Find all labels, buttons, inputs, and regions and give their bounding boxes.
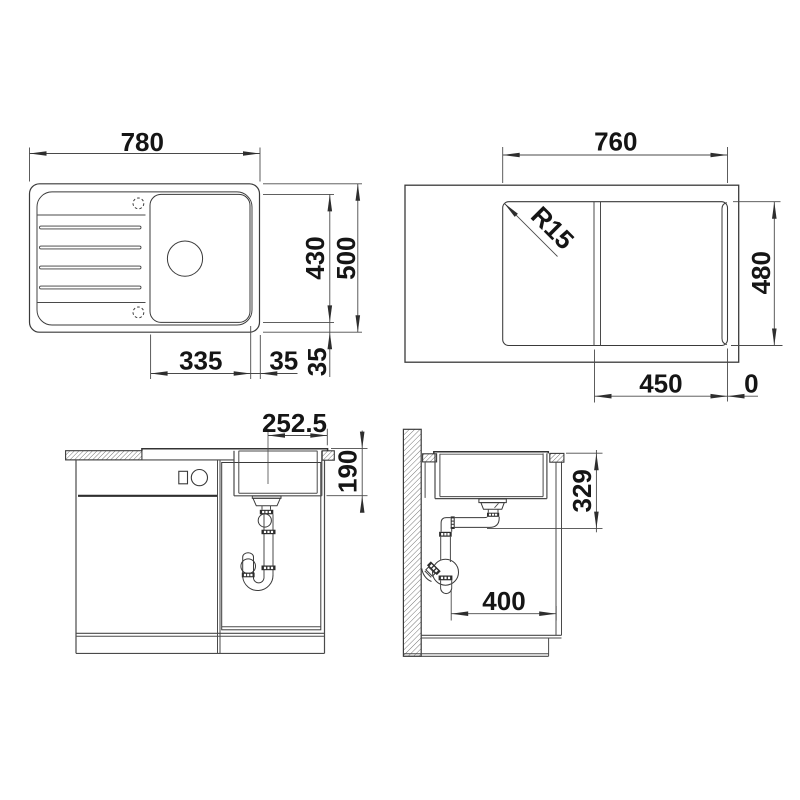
svg-text:252.5: 252.5 [262, 408, 327, 438]
svg-text:35: 35 [269, 346, 298, 376]
svg-text:0: 0 [744, 369, 758, 399]
svg-text:35: 35 [302, 347, 332, 376]
svg-text:760: 760 [594, 127, 637, 157]
svg-text:400: 400 [482, 586, 525, 616]
svg-text:780: 780 [121, 127, 164, 157]
svg-text:335: 335 [179, 346, 222, 376]
svg-text:329: 329 [567, 469, 597, 512]
svg-text:190: 190 [332, 450, 362, 493]
svg-text:480: 480 [746, 251, 776, 294]
svg-text:500: 500 [331, 237, 361, 280]
svg-text:450: 450 [639, 369, 682, 399]
svg-text:430: 430 [300, 236, 330, 279]
